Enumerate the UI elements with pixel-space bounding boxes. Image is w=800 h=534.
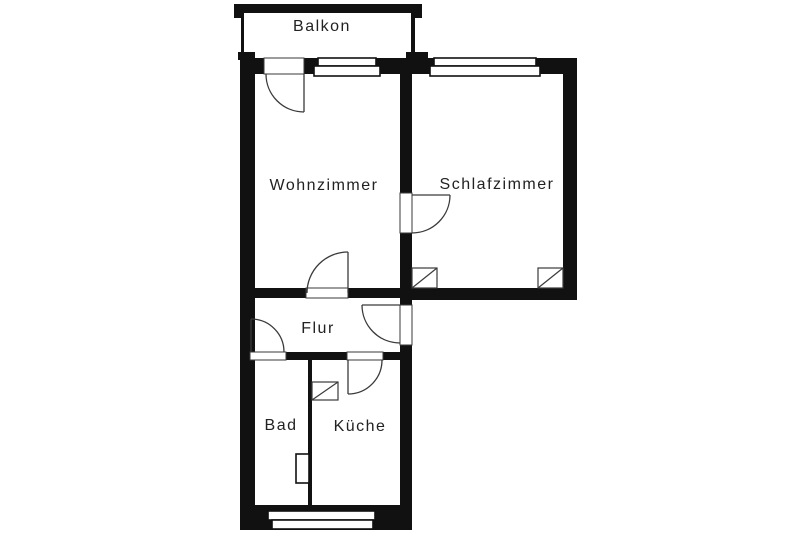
opening-kueche [347,352,383,360]
wall-balcony-top [234,4,422,13]
window-bottom-inner [268,511,375,520]
wall-wohn-schlaf-divider [400,58,412,293]
window-bottom-outer [272,520,373,529]
room-label-balkon: Balkon [293,18,351,35]
opening-bad [250,352,286,360]
window-wohnzimmer-inner [314,66,380,76]
wall-balcony-stub-right [415,4,422,18]
corner-mark-schlafzimmer-left [412,268,437,288]
wall-bad-kueche-divider [308,360,312,506]
room-label-kueche: Küche [334,418,387,435]
wall-balcony-stub-left [234,4,241,18]
room-label-wohnzimmer: Wohnzimmer [270,177,379,194]
corner-mark-schlafzimmer-right [538,268,563,288]
opening-schlafzimmer [400,193,412,233]
shaft-kueche [312,382,338,400]
room-label-schlafzimmer: Schlafzimmer [440,176,555,193]
wall-exterior-right-upper [563,58,577,300]
opening-balcony-door [264,58,304,74]
opening-entrance [400,305,412,345]
wall-balcony-right [411,13,415,58]
window-schlafzimmer-outer [434,58,536,66]
opening-wohnzimmer [306,288,348,298]
floorplan-page: Balkon Wohnzimmer Schlafzimmer Flur Bad … [0,0,800,534]
floorplan-drawing: Balkon Wohnzimmer Schlafzimmer Flur Bad … [0,0,800,534]
fixture-bad-duct [296,454,309,483]
room-label-flur: Flur [301,320,335,337]
room-label-bad: Bad [265,417,298,434]
wall-balcony-left [241,13,244,58]
window-wohnzimmer-outer [318,58,376,66]
wall-schlafzimmer-bottom [400,288,577,300]
window-schlafzimmer-inner [430,66,540,76]
